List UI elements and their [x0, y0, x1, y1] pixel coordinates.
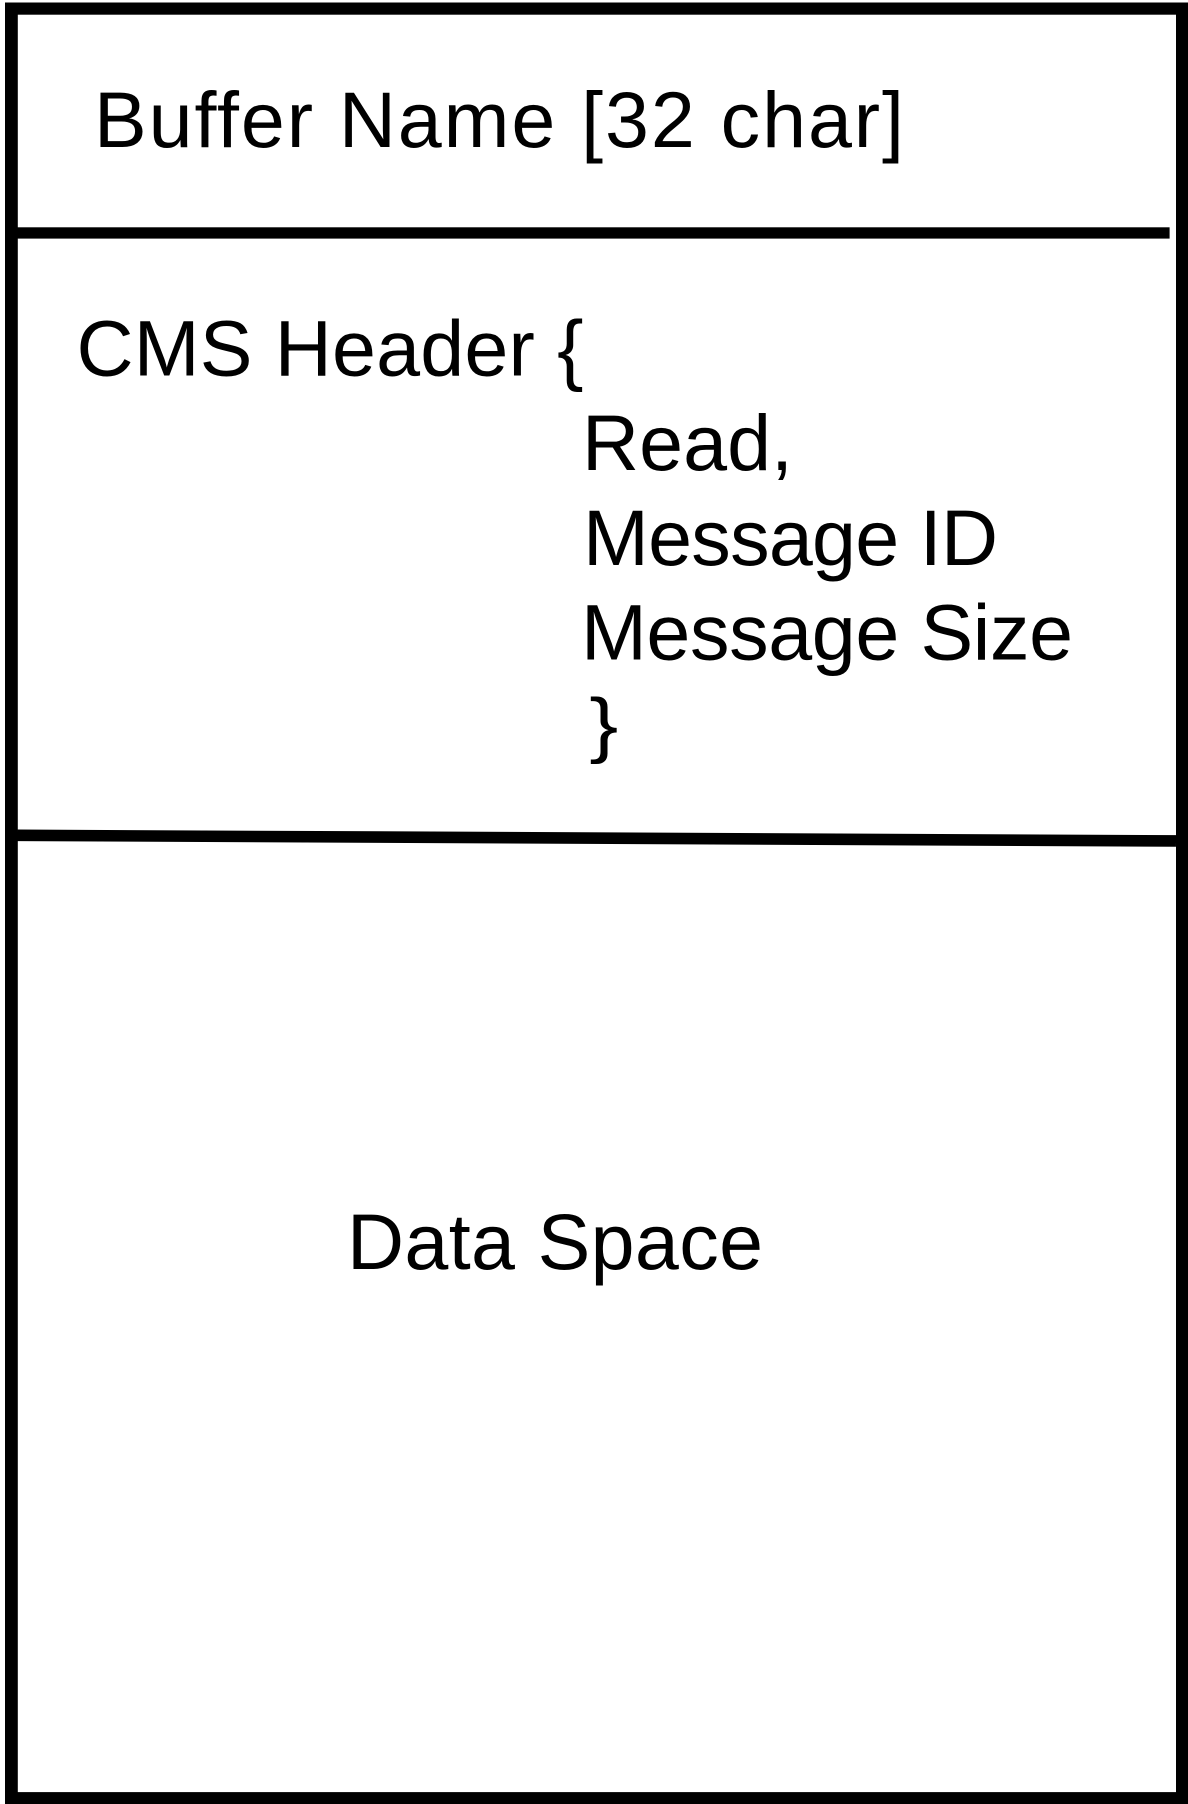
- svg-text:Message ID: Message ID: [583, 493, 998, 582]
- svg-text:Read,: Read,: [582, 398, 793, 487]
- svg-text:Message Size: Message Size: [581, 588, 1073, 677]
- svg-text:Data Space: Data Space: [347, 1197, 763, 1286]
- svg-text:}: }: [589, 684, 618, 765]
- svg-text:CMS Header {: CMS Header {: [77, 304, 584, 393]
